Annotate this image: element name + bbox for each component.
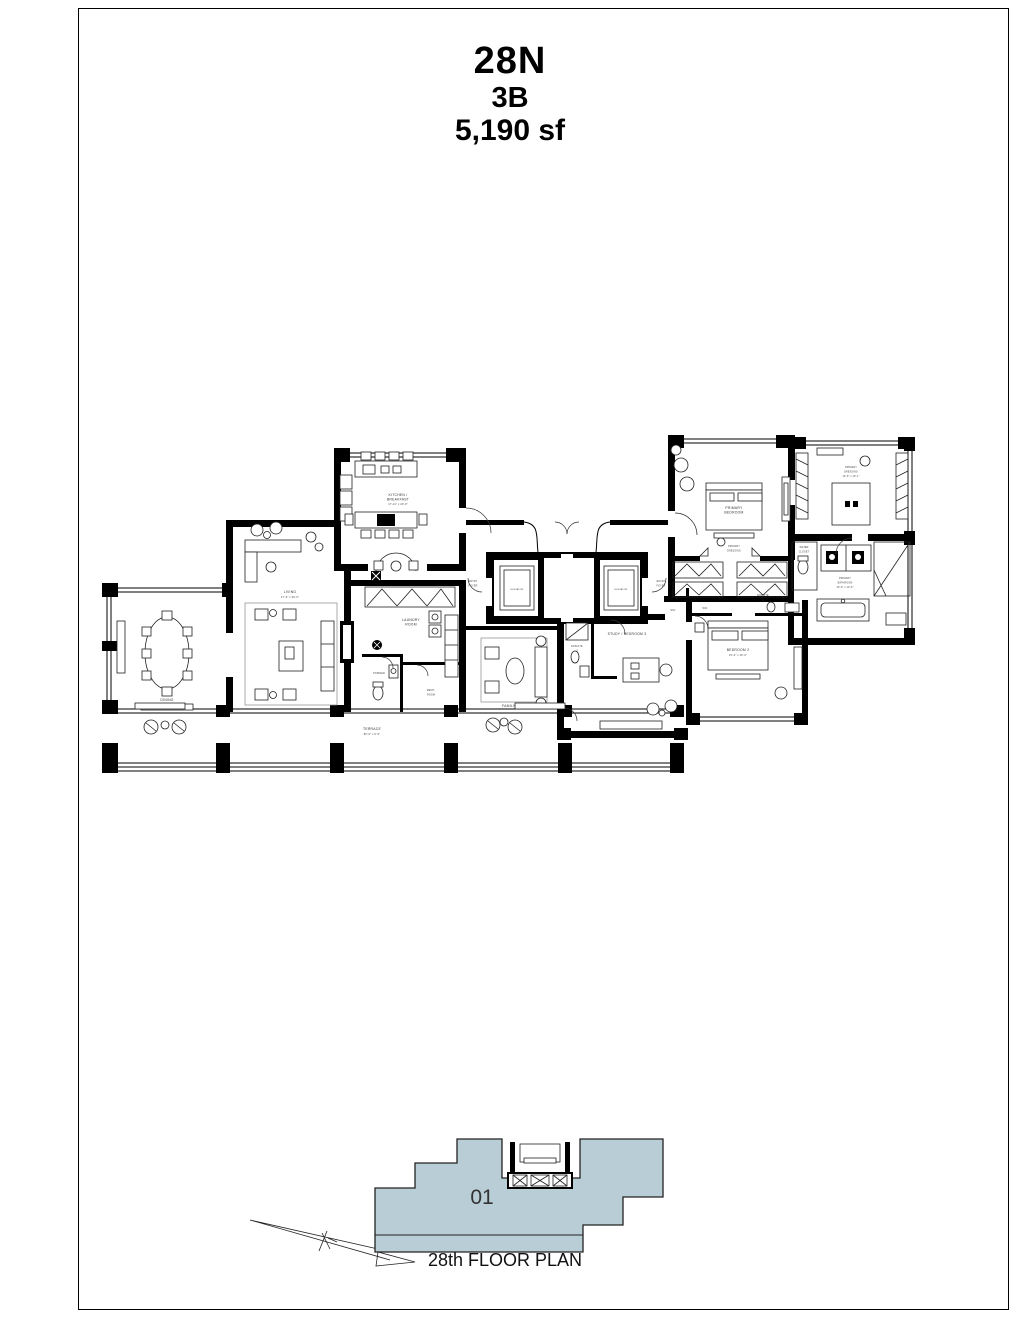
svg-text:17'-11" x 20'-0": 17'-11" x 20'-0" [388,502,408,506]
primary-dressing-hall-label: PRIMARY DRESSING [727,545,741,553]
svg-text:ENTRY: ENTRY [657,580,666,583]
svg-text:BEDROOM 2: BEDROOM 2 [727,648,750,652]
svg-text:BREAKFAST: BREAKFAST [387,498,409,502]
svg-text:ENTRY: ENTRY [469,580,478,583]
elevator-label-right: ELEVATOR [615,588,628,591]
dining-label: DINING [160,698,173,702]
svg-text:CLOSET: CLOSET [799,551,810,554]
primary-bath-label: PRIMARY BATHROOM 16'-8" x 10'-6" [837,577,854,589]
family-room: FAMILY ROOM [481,636,547,708]
unit-number-title: 28N [0,40,1020,82]
svg-text:FOYER: FOYER [469,585,478,588]
svg-text:16'-8" x 10'-6": 16'-8" x 10'-6" [837,586,854,589]
svg-text:LIVING: LIVING [284,590,297,594]
svg-text:PRIMARY: PRIMARY [728,545,740,548]
key-plan-unit-number: 01 [470,1186,493,1209]
svg-text:MECH.: MECH. [427,689,436,692]
key-plan-caption: 28th FLOOR PLAN [335,1250,675,1271]
living-label: LIVING 17'-6" x 30'-6" [281,590,299,599]
svg-text:86'-0" x 9'-6": 86'-0" x 9'-6" [364,732,381,736]
wic2-label: WIC [702,607,707,610]
floor-plan-drawing: ELEVATOR ELEVATOR ENTRY FOYER ENTRY FOYE… [95,425,915,785]
unit-area-title: 5,190 sf [0,114,1020,148]
svg-text:BEDROOM: BEDROOM [724,511,743,515]
wic-label: WIC [670,609,675,612]
elevator-core: ELEVATOR ELEVATOR ENTRY FOYER ENTRY FOYE… [468,552,666,624]
svg-text:WATER: WATER [799,546,808,549]
floor-plan-sheet: 28N 3B 5,190 sf [0,0,1020,1320]
svg-text:DRESSING: DRESSING [844,471,858,474]
svg-text:TERRACE: TERRACE [363,727,381,731]
living-room: LIVING 17'-6" x 30'-6" [245,522,382,705]
unit-layout-title: 3B [0,82,1020,114]
kitchen-label: KITCHEN / BREAKFAST 17'-11" x 20'-0" [387,493,409,506]
study-label: STUDY / BEDROOM 3 [608,632,647,636]
entry-foyer-label-right: ENTRY FOYER [657,580,666,588]
svg-text:DRESSING: DRESSING [727,550,741,553]
svg-text:3: 3 [576,650,578,653]
powder-label: POWDER [373,672,385,675]
svg-text:15'-0" x 16'-0": 15'-0" x 16'-0" [729,653,747,657]
svg-text:16'-8" x 16'-1": 16'-8" x 16'-1" [843,475,860,478]
elevator-label-left: ELEVATOR [511,588,524,591]
svg-text:PRIMARY: PRIMARY [845,466,857,469]
svg-text:FOYER: FOYER [657,585,666,588]
water-closet-label: WATER CLOSET [799,546,810,554]
primary-dressing-hall [673,562,787,597]
svg-text:LAUNDRY: LAUNDRY [402,618,420,622]
svg-text:ROOM: ROOM [427,694,435,697]
primary-bedroom-label: PRIMARY BEDROOM [724,506,743,515]
svg-text:KITCHEN /: KITCHEN / [388,493,407,497]
svg-text:ENSUITE: ENSUITE [571,645,583,648]
key-plan-elevator-core [507,1142,573,1189]
svg-text:ROOM: ROOM [405,623,417,627]
dining-room: DINING [117,611,193,710]
primary-bedroom: PRIMARY BEDROOM PRIMARY DRESSING [671,445,790,556]
title-block: 28N 3B 5,190 sf [0,40,1020,148]
primary-dressing-label: PRIMARY DRESSING 16'-8" x 16'-1" [843,466,860,478]
svg-text:17'-6" x 30'-6": 17'-6" x 30'-6" [281,595,299,599]
entry-foyer-label-left: ENTRY FOYER [469,580,478,588]
laundry-label: LAUNDRY ROOM [402,618,420,627]
primary-bath: WATER CLOSET PRIMARY BATHROOM 16'-8" x 1… [792,538,910,625]
primary-dressing-room: PRIMARY DRESSING 16'-8" x 16'-1" [796,448,908,525]
svg-text:PRIMARY: PRIMARY [725,506,743,510]
bedroom2: BEDROOM 2 15'-0" x 16'-0" WIC ENSUITE 2 [695,594,802,699]
mech-label: MECH. ROOM [427,689,436,697]
kitchen-room: KITCHEN / BREAKFAST 17'-11" x 20'-0" [340,452,491,571]
svg-text:PRIMARY: PRIMARY [839,577,851,580]
terrace-label: TERRACE 86'-0" x 9'-6" [363,727,381,736]
svg-text:BATHROOM: BATHROOM [838,582,853,585]
